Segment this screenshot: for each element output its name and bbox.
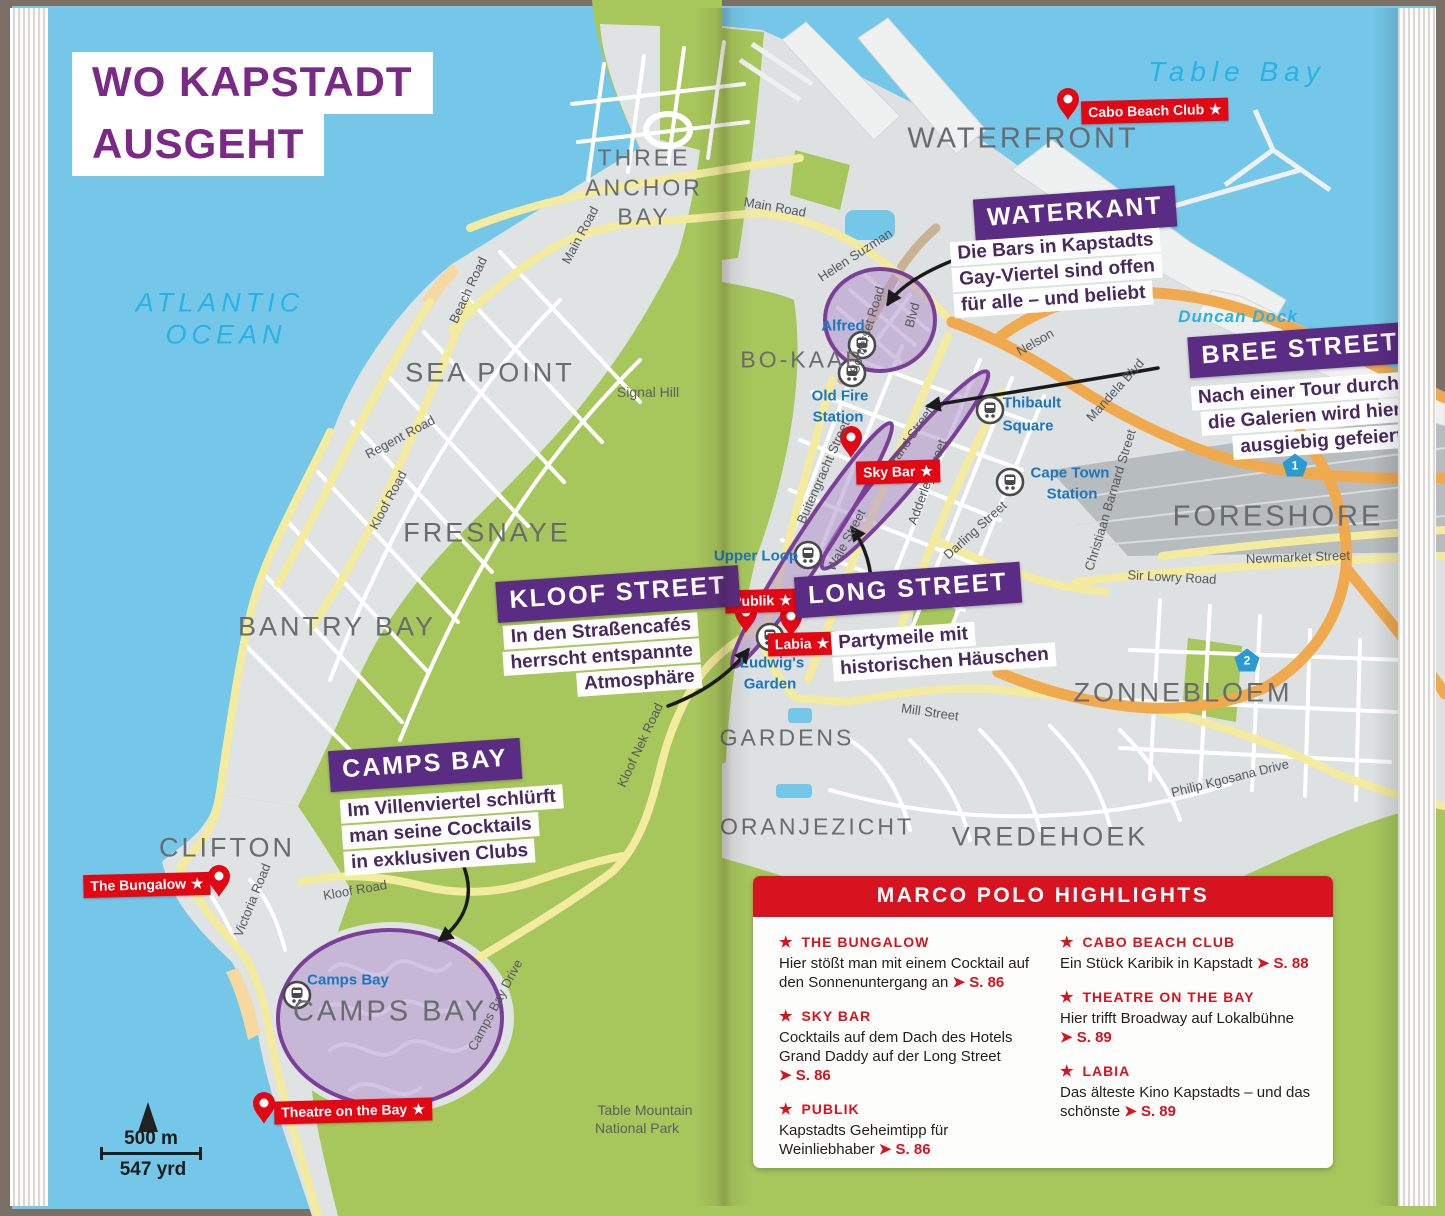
arrow-icon: ➤ — [1060, 1029, 1073, 1046]
book-spread: WO KAPSTADT AUSGEHT ATLANTIC OCEAN Table… — [0, 0, 1445, 1216]
district-label-sea-point: SEA POINT — [405, 358, 575, 389]
highlight-entry-theatre-on-the-bay: ★THEATRE ON THE BAY Hier trifft Broadway… — [1060, 988, 1315, 1047]
highlight-name: THE BUNGALOW — [801, 934, 929, 950]
highlight-desc: Hier trifft Broadway auf Lokalbühne — [1060, 1010, 1294, 1027]
highlight-desc: Cocktails auf dem Dach des Hotels Grand … — [779, 1029, 1012, 1065]
highlight-desc: Das älteste Kino Kapstadts – und das sch… — [1060, 1084, 1310, 1120]
highlight-name: LABIA — [1082, 1063, 1130, 1079]
star-icon: ★ — [816, 635, 829, 651]
page-edge-left — [10, 8, 48, 1206]
venue-badge-labia: Labia★ — [768, 632, 837, 657]
station-label-cape-town-1: Cape Town — [1031, 465, 1110, 482]
highlight-page: S. 88 — [1274, 955, 1309, 972]
water-label-ocean: OCEAN — [165, 320, 286, 351]
page-right-shade — [1372, 8, 1398, 1206]
star-icon: ★ — [1209, 101, 1222, 117]
district-label-vredehoek: VREDEHOEK — [952, 822, 1149, 853]
arrow-icon: ➤ — [1257, 955, 1270, 972]
star-icon: ★ — [1060, 934, 1074, 951]
district-label-bantry-bay: BANTRY BAY — [238, 612, 436, 643]
district-label-anchor: ANCHOR — [585, 175, 703, 202]
star-icon: ★ — [191, 875, 204, 891]
page-fold-shadow — [694, 8, 752, 1206]
station-label-thibault-2: Square — [1003, 418, 1054, 435]
highlight-name: SKY BAR — [801, 1008, 871, 1024]
terrain-label-tmnp-2: National Park — [595, 1120, 679, 1136]
venue-badge-label: The Bungalow — [90, 875, 186, 893]
page-title: WO KAPSTADT AUSGEHT — [72, 52, 433, 176]
star-icon: ★ — [412, 1101, 425, 1117]
callout-caption-kloof-street: In den Straßencafés herrscht entspannte … — [476, 610, 703, 703]
highlight-entry-labia: ★LABIA Das älteste Kino Kapstadts – und … — [1060, 1062, 1315, 1121]
venue-badge-label: Sky Bar — [863, 463, 916, 480]
highlight-page: S. 86 — [796, 1067, 831, 1084]
district-label-waterfront: WATERFRONT — [907, 123, 1138, 156]
highlight-entry-cabo-beach-club: ★CABO BEACH CLUB Ein Stück Karibik in Ka… — [1060, 933, 1315, 973]
water-label-atlantic: ATLANTIC — [136, 288, 305, 319]
district-label-clifton: CLIFTON — [159, 833, 295, 864]
star-icon: ★ — [1060, 989, 1074, 1006]
venue-badge-label: Cabo Beach Club — [1088, 101, 1204, 120]
star-icon: ★ — [920, 463, 933, 479]
highlight-entry-sky-bar: ★SKY BAR Cocktails auf dem Dach des Hote… — [779, 1007, 1034, 1085]
arrow-icon: ➤ — [953, 974, 966, 991]
station-label-camps-bay: Camps Bay — [307, 972, 389, 989]
highlight-entry-the-bungalow: ★THE BUNGALOW Hier stößt man mit einem C… — [779, 933, 1034, 992]
venue-badge-sky-bar: Sky Bar★ — [856, 459, 940, 484]
highlights-column-left: ★THE BUNGALOW Hier stößt man mit einem C… — [779, 933, 1034, 1174]
district-label-foreshore: FORESHORE — [1173, 501, 1384, 534]
district-label-bay: BAY — [617, 204, 670, 231]
terrain-label-signal-hill: Signal Hill — [617, 384, 679, 400]
arrow-icon: ➤ — [779, 1067, 792, 1084]
highlight-page: S. 86 — [896, 1141, 931, 1158]
district-label-bo-kaap: BO-KAAP — [740, 347, 863, 374]
water-label-table-bay: Table Bay — [1148, 56, 1326, 88]
star-icon: ★ — [779, 592, 792, 608]
star-icon: ★ — [779, 934, 793, 951]
district-label-zonnebloem: ZONNEBLOEM — [1073, 678, 1292, 709]
star-icon: ★ — [1060, 1063, 1074, 1080]
highlights-column-right: ★CABO BEACH CLUB Ein Stück Karibik in Ka… — [1060, 933, 1315, 1174]
station-label-cape-town-2: Station — [1047, 486, 1098, 503]
scale-metric: 500 m — [124, 1128, 178, 1150]
star-icon: ★ — [779, 1008, 793, 1025]
scale-bar — [100, 1152, 202, 1155]
district-label-camps-bay: CAMPS BAY — [293, 996, 487, 1029]
venue-badge-the-bungalow: The Bungalow★ — [83, 872, 211, 898]
page-title-line2: AUSGEHT — [72, 114, 324, 176]
venue-badge-label: Theatre on the Bay — [281, 1101, 407, 1120]
station-label-thibault-1: Thibault — [1003, 395, 1061, 412]
arrow-icon: ➤ — [879, 1141, 892, 1158]
page-edge-right — [1398, 8, 1436, 1206]
venue-badge-cabo-beach-club: Cabo Beach Club★ — [1081, 98, 1229, 125]
district-label-three: THREE — [598, 145, 691, 172]
highlight-name: THEATRE ON THE BAY — [1082, 989, 1254, 1005]
callout-caption-waterkant: Die Bars in Kapstadts Gay-Viertel sind o… — [950, 226, 1165, 318]
station-label-alfred: Alfred — [821, 318, 864, 335]
highlight-name: CABO BEACH CLUB — [1082, 934, 1235, 950]
highlight-page: S. 86 — [969, 974, 1004, 991]
water-label-duncan-dock: Duncan Dock — [1178, 307, 1298, 327]
highlights-panel: MARCO POLO HIGHLIGHTS ★THE BUNGALOW Hier… — [753, 876, 1333, 1168]
highlight-page: S. 89 — [1077, 1029, 1112, 1046]
star-icon: ★ — [779, 1101, 793, 1118]
page-title-line1: WO KAPSTADT — [72, 52, 433, 114]
terrain-label-tmnp-1: Table Mountain — [598, 1102, 693, 1118]
highlight-page: S. 89 — [1141, 1103, 1176, 1120]
venue-badge-theatre-on-the-bay: Theatre on the Bay★ — [274, 1097, 432, 1124]
highlights-header: MARCO POLO HIGHLIGHTS — [753, 876, 1333, 917]
highlight-desc: Ein Stück Karibik in Kapstadt — [1060, 955, 1253, 972]
highlight-name: PUBLIK — [801, 1101, 859, 1117]
callout-caption-camps-bay: Im Villenviertel schlürft man seine Cock… — [340, 782, 568, 875]
venue-badge-label: Labia — [775, 635, 812, 652]
arrow-icon: ➤ — [1124, 1103, 1137, 1120]
station-label-old-fire-1: Old Fire — [812, 388, 869, 405]
highlight-entry-publik: ★PUBLIK Kapstadts Geheimtipp für Weinlie… — [779, 1100, 1034, 1159]
scale-imperial: 547 yrd — [120, 1159, 187, 1181]
station-label-old-fire-2: Station — [813, 409, 864, 426]
district-label-fresnaye: FRESNAYE — [403, 518, 571, 549]
